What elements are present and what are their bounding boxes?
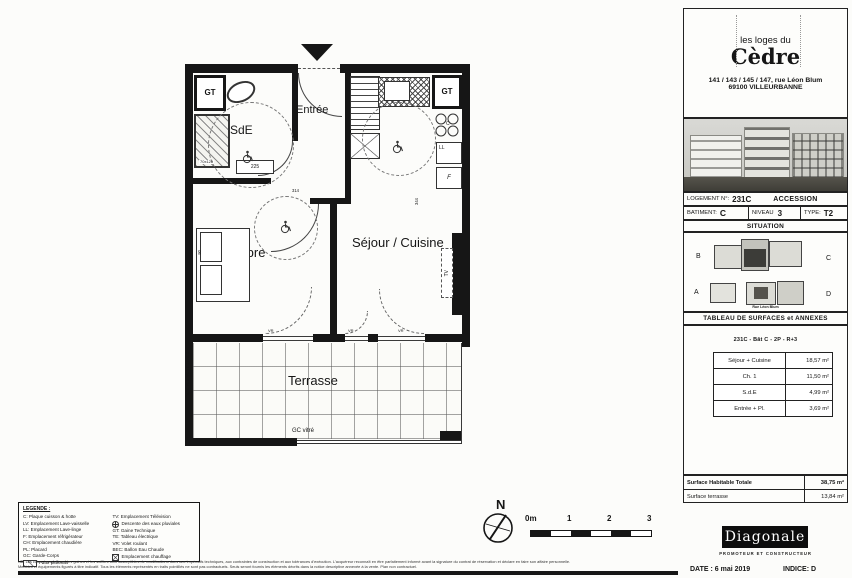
glass-railing (297, 440, 462, 444)
type-cell: TYPE: T2 (801, 207, 847, 219)
scale-segment (551, 531, 571, 536)
situation-label-a: A (694, 289, 699, 296)
table-row: S.d.E 4,99 m² (714, 385, 832, 401)
wall-right-chunk (452, 233, 470, 315)
scale-segment (611, 531, 631, 536)
pare-vue-label: Pare vue verre opale (186, 352, 191, 398)
date-label: DATE : 6 mai 2019 (690, 566, 750, 573)
window-line (378, 340, 425, 341)
surfaces-table-box: 231C - Bât C - 2P - R+3 Séjour + Cuisine… (683, 325, 848, 475)
surfaces-subtitle: 231C - Bât C - 2P - R+3 (684, 337, 847, 343)
sde-turning-circle (208, 102, 294, 188)
row-value: 18,57 m² (786, 353, 832, 368)
window-line (345, 336, 368, 337)
washer-label: LL (439, 146, 445, 151)
entrance-threshold-line (298, 68, 340, 69)
photo-building-mid (744, 127, 790, 181)
window-line (378, 336, 425, 337)
gt-left-label: GT (204, 89, 215, 97)
wall-bottom-a (185, 334, 263, 342)
scale-bar (530, 530, 652, 537)
scale-segment (631, 531, 651, 536)
wall-chambre-sejour (330, 204, 337, 334)
dim-314: 314 (292, 189, 299, 193)
bed-pillow (200, 265, 222, 295)
total-value: 13,84 m² (805, 490, 847, 503)
total-label: Surface Habitable Totale (684, 476, 805, 489)
table-row: Ch. 1 11,50 m² (714, 369, 832, 385)
type-value: T2 (824, 209, 833, 218)
room-label-entree: Entrée (296, 105, 328, 116)
compass-icon (480, 510, 516, 546)
surfaces-table: Séjour + Cuisine 18,57 m² Ch. 1 11,50 m²… (713, 352, 833, 417)
room-label-terrasse: Terrasse (288, 374, 338, 387)
legend-title: LEGENDE : (23, 506, 195, 513)
total-label: Surface terrasse (684, 490, 805, 503)
situation-map: B C A D Rue Léon Blum (683, 232, 848, 312)
vr-label: VR (398, 329, 404, 333)
terrasse-corner-block (440, 431, 462, 440)
situation-band: SITUATION (683, 220, 848, 232)
scale-segment (571, 531, 591, 536)
kitchen-sink (384, 81, 410, 101)
type-label: TYPE: (804, 210, 821, 216)
terrasse-edge-right (461, 343, 462, 443)
logement-label: LOGEMENT N°: (687, 196, 729, 202)
wall-top-left (185, 64, 298, 73)
brand-box: les loges du Cèdre 141 / 143 / 145 / 147… (683, 8, 848, 118)
situation-building-highlight (754, 287, 768, 299)
batiment-value: C (720, 208, 726, 218)
room-label-sde: SdE (230, 124, 253, 136)
situation-building (777, 281, 804, 305)
row-label: Ch. 1 (714, 369, 786, 384)
builder-name: Diagonale (725, 529, 806, 545)
situation-building (769, 241, 802, 267)
terrasse-wall-bottom (185, 438, 297, 446)
entrance-arrow-icon (301, 44, 333, 61)
wheelchair-icon (392, 140, 404, 154)
room-label-sejour: Séjour / Cuisine (352, 236, 444, 249)
legend-item-label: Descente des eaux pluviales (121, 521, 179, 528)
vr-label: VR (268, 329, 274, 333)
brand-address2: 69100 VILLEURBANNE (684, 84, 847, 91)
situation-building (710, 283, 736, 303)
rainwater-icon (112, 521, 119, 528)
situation-building (714, 245, 742, 269)
total-row: Surface terrasse 13,84 m² (684, 490, 847, 503)
fridge-label: F (447, 175, 451, 181)
photo-foreground (684, 177, 848, 192)
niveau-cell: NIVEAU 3 (749, 207, 801, 219)
fine-print-line2: Meubles et équipements figurés à titre i… (18, 565, 673, 569)
wall-bottom-c (425, 334, 462, 342)
scale-segment (531, 531, 551, 536)
row-label: Séjour + Cuisine (714, 353, 786, 368)
brand-address1: 141 / 143 / 145 / 147, rue Léon Blum (684, 77, 847, 84)
hob-label: C (446, 122, 450, 127)
dim-344: 344 (415, 198, 419, 205)
table-row: Entrée + Pl. 3,69 m² (714, 401, 832, 416)
row-value: 11,50 m² (786, 369, 832, 384)
window-line (345, 340, 368, 341)
wheelchair-icon (242, 150, 254, 164)
batiment-label: BATIMENT: (687, 210, 717, 216)
building-level-type-row: BATIMENT: C NIVEAU 3 TYPE: T2 (683, 206, 848, 220)
scale-tick-3: 3 (647, 515, 651, 523)
niveau-value: 3 (778, 209, 782, 218)
brand-name: Cèdre (684, 46, 847, 68)
washer-box: LL (436, 142, 462, 164)
surfaces-band: TABLEAU DE SURFACES et ANNEXES (683, 312, 848, 325)
niveau-label: NIVEAU (752, 210, 774, 216)
total-value: 38,75 m² (805, 476, 847, 489)
legend-box: LEGENDE : C: Plaque cuisson & hotte LV: … (18, 502, 200, 562)
situation-street-label: Rue Léon Blum (684, 305, 847, 309)
situation-label-b: B (696, 253, 701, 260)
gt-right-label: GT (441, 88, 452, 96)
builder-tagline: PROMOTEUR ET CONSTRUCTEUR (683, 551, 848, 556)
wall-left (185, 64, 193, 347)
window-line (263, 340, 313, 341)
bed-pillow (200, 232, 222, 262)
photo-building-left (690, 135, 742, 179)
registration-mark (800, 15, 803, 67)
scale-tick-1: 1 (567, 515, 571, 523)
row-value: 3,69 m² (786, 401, 832, 416)
row-label: Entrée + Pl. (714, 401, 786, 416)
accession-label: ACCESSION (773, 196, 817, 203)
floor-plan-sheet: GT 70x120 225 SdE Entrée 314 GT (0, 0, 852, 578)
total-row: Surface Habitable Totale 38,75 m² (684, 476, 847, 490)
wall-top-right (340, 64, 470, 73)
legend-item: Descente des eaux pluviales (112, 521, 195, 528)
gt-duct-left: GT (194, 75, 226, 111)
window-line (263, 336, 313, 337)
row-label: S.d.E (714, 385, 786, 400)
terrasse-decking (193, 343, 462, 439)
scale-tick-0: 0m (525, 515, 537, 523)
sejour-turning-circle (362, 102, 436, 176)
tv-label: TV (445, 270, 450, 276)
situation-label-d: D (826, 291, 831, 298)
table-row: Séjour + Cuisine 18,57 m² (714, 353, 832, 369)
registration-mark (736, 15, 739, 67)
scale-tick-2: 2 (607, 515, 611, 523)
surfaces-totals: Surface Habitable Totale 38,75 m² Surfac… (683, 475, 848, 503)
indice-label: INDICE: D (783, 566, 816, 573)
situation-label-c: C (826, 255, 831, 262)
window-arc (265, 287, 312, 334)
wheelchair-icon (280, 220, 292, 234)
builder-logo: Diagonale (722, 526, 808, 548)
wall-bottom-b (313, 334, 345, 342)
batiment-cell: BATIMENT: C (684, 207, 749, 219)
bottom-bar (18, 571, 678, 575)
situation-building-highlight (744, 249, 766, 267)
tv-box: TV (441, 248, 453, 298)
logement-value: 231C (732, 195, 751, 204)
photo-building-right (792, 133, 844, 179)
fridge-box: F (436, 167, 462, 189)
gt-duct-right: GT (432, 75, 462, 109)
scale-segment (591, 531, 611, 536)
floor-plan: GT 70x120 225 SdE Entrée 314 GT (0, 0, 680, 578)
wall-bottom-mullion (368, 334, 378, 342)
dim-90: 90 (198, 250, 202, 255)
row-value: 4,99 m² (786, 385, 832, 400)
railing-label: GC vitré (292, 428, 314, 434)
vr-label: VR (348, 329, 354, 333)
building-photo (683, 118, 848, 192)
unit-info-row: LOGEMENT N°: 231C ACCESSION (683, 192, 848, 206)
